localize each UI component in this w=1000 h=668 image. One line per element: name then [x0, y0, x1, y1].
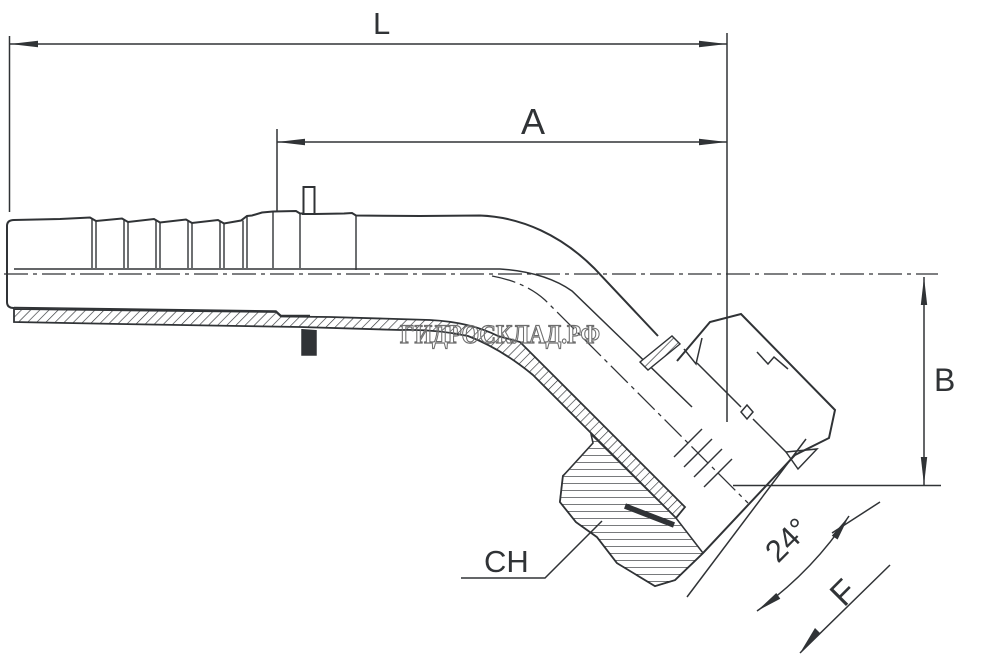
svg-text:24°: 24°	[758, 511, 816, 569]
svg-text:L: L	[373, 6, 390, 41]
svg-text:ГИДРОСКЛАД.РФ: ГИДРОСКЛАД.РФ	[400, 320, 600, 349]
svg-text:A: A	[521, 101, 545, 142]
svg-text:F: F	[823, 572, 865, 614]
svg-text:B: B	[934, 362, 955, 398]
svg-text:CH: CH	[484, 544, 529, 579]
